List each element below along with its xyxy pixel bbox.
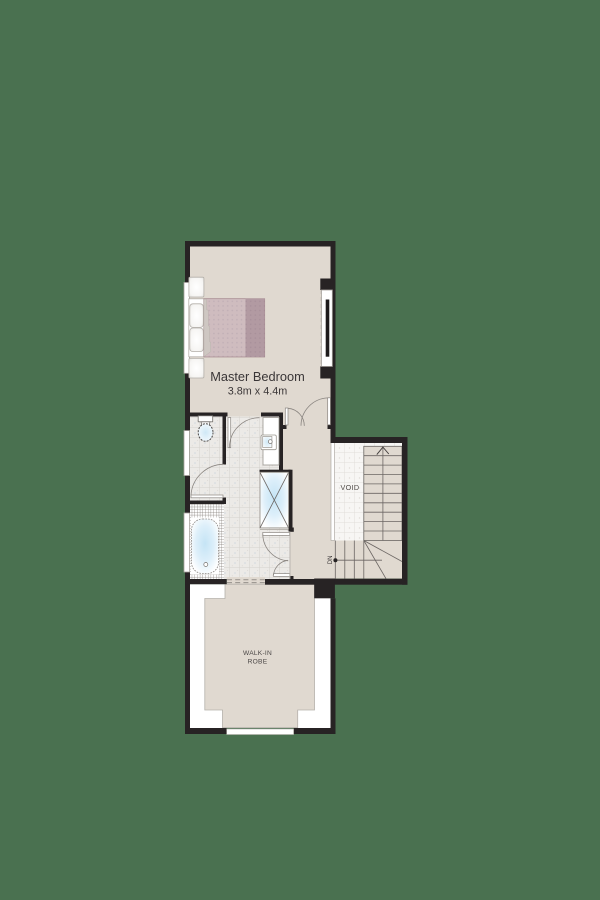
svg-text:VOID: VOID xyxy=(341,483,360,492)
svg-text:WALK-IN: WALK-IN xyxy=(243,650,272,657)
svg-text:Master Bedroom: Master Bedroom xyxy=(210,369,305,384)
svg-text:3.8m x 4.4m: 3.8m x 4.4m xyxy=(228,386,287,398)
svg-text:DN: DN xyxy=(328,556,334,565)
svg-text:ROBE: ROBE xyxy=(248,659,268,666)
